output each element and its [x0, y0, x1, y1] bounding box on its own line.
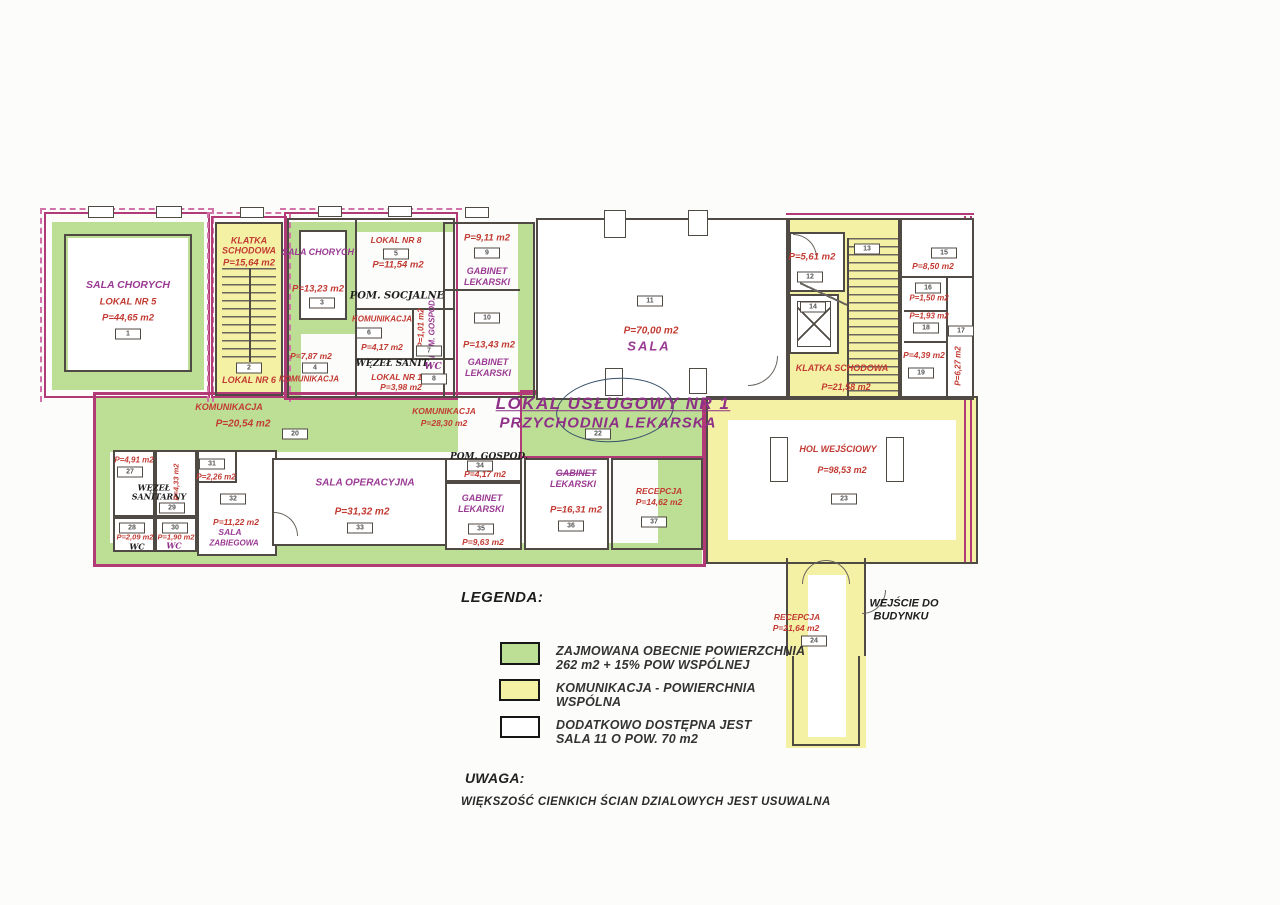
- room34-area: P=4,17 m2: [464, 470, 506, 480]
- klatka2-area: P=21,58 m2: [821, 382, 870, 392]
- pillar-sala-top-2: [688, 210, 708, 236]
- room32-name-2: ZABIEGOWA: [209, 538, 258, 547]
- room5-area: P=11,54 m2: [372, 261, 423, 272]
- legend-item-2-line-2: WSPÓLNA: [556, 695, 621, 709]
- room10-number: 10: [474, 313, 500, 324]
- corridor21-area: P=28,30 m2: [421, 419, 468, 429]
- room10-area: P=13,43 m2: [463, 341, 515, 352]
- room37-area: P=14,62 m2: [636, 498, 683, 508]
- room12-number: 12: [797, 272, 823, 283]
- room10-name-2: LEKARSKI: [465, 368, 511, 378]
- corridor20-number: 20: [282, 429, 308, 440]
- entrance-label-2: BUDYNKU: [874, 611, 929, 624]
- room1-number: 1: [115, 329, 141, 340]
- partition-gabinet: [445, 289, 520, 291]
- room5-lokal: LOKAL NR 8: [371, 236, 422, 246]
- pillar-hol-2: [886, 437, 904, 482]
- room15-number: 15: [931, 248, 957, 259]
- room35-number: 35: [468, 524, 494, 535]
- sala11-number: 11: [637, 296, 663, 307]
- room6-name: KOMUNIKACJA: [352, 314, 412, 323]
- room29-area: P=4,33 m2: [173, 464, 182, 501]
- recepcja24-area: P=21,64 m2: [773, 624, 820, 634]
- room1-name: SALA CHORYCH: [86, 279, 170, 291]
- walls-hol: [706, 396, 978, 564]
- window-bump: [318, 206, 342, 217]
- hol-number: 23: [831, 494, 857, 505]
- room5-number: 5: [383, 249, 409, 260]
- room7-number: 7: [416, 346, 442, 357]
- room1-lokal: LOKAL NR 5: [100, 298, 157, 309]
- room9-name-1: GABINET: [467, 266, 508, 276]
- partition-fr-h3: [904, 341, 946, 343]
- partition-fr-h1: [902, 276, 972, 278]
- room33-number: 33: [347, 523, 373, 534]
- stairs-left-center-line: [249, 268, 251, 362]
- room37-name: RECEPCJA: [636, 487, 682, 497]
- room6-number: 6: [356, 328, 382, 339]
- room17-number: 17: [948, 326, 974, 337]
- room10-name-1: GABINET: [468, 357, 509, 367]
- room9-number: 9: [474, 248, 500, 259]
- room8-number: 8: [421, 374, 447, 385]
- room1-area: P=44,65 m2: [102, 314, 154, 325]
- stairs-right: [847, 238, 898, 398]
- partition-block3-h1: [355, 308, 455, 310]
- room36-name-1-strikethrough: GABINET: [556, 468, 597, 478]
- lokal-uslugowy-number: 22: [585, 429, 611, 440]
- klatka2-name: KLATKA SCHODOWA: [796, 363, 889, 373]
- room8-wc: WC: [424, 362, 441, 372]
- pillar-hol-1: [770, 437, 788, 482]
- room36-name-2: LEKARSKI: [550, 479, 596, 489]
- room3-name: SALA CHORYCH: [282, 247, 354, 257]
- corridor20-area: P=20,54 m2: [216, 418, 271, 430]
- window-bump: [156, 206, 182, 218]
- room14-number: 14: [800, 302, 826, 313]
- window-bump: [88, 206, 114, 218]
- room31-area: P=2,26 m2: [196, 472, 235, 481]
- room35-name-1: GABINET: [462, 493, 503, 503]
- pillar-sala-top-1: [604, 210, 626, 238]
- room28-wc: WC: [129, 542, 144, 551]
- room4-name: KOMUNIKACJA: [279, 374, 339, 383]
- room16-area: P=1,50 m2: [909, 293, 948, 302]
- partition-block3-v2: [412, 308, 414, 360]
- room6-area: P=4,17 m2: [361, 343, 403, 353]
- outline-top-right-section: [786, 213, 974, 216]
- room9-name-2: LEKARSKI: [464, 277, 510, 287]
- room33-area: P=31,32 m2: [335, 506, 390, 518]
- room35-name-2: LEKARSKI: [458, 504, 504, 514]
- legend-item-1-line-1: ZAJMOWANA OBECNIE POWIERZCHNIA: [556, 644, 805, 658]
- legend-title: LEGENDA:: [461, 589, 543, 606]
- room3-number: 3: [309, 298, 335, 309]
- room7-area: P=1,01 m2: [416, 308, 425, 347]
- lokal-uslugowy-title: LOKAL USŁUGOWY NR 1: [496, 394, 731, 414]
- note-text: WIĘKSZOŚĆ CIENKICH ŚCIAN DZIALOWYCH JEST…: [461, 796, 831, 808]
- room17-area: P=6,27 m2: [953, 346, 962, 385]
- room37-number: 37: [641, 517, 667, 528]
- room19-number: 19: [908, 368, 934, 379]
- entrance-label-1: WEJŚCIE DO: [869, 598, 938, 611]
- klatka1-area: P=15,64 m2: [223, 259, 275, 270]
- room16-number: 16: [915, 283, 941, 294]
- room32-name-1: SALA: [218, 528, 241, 538]
- corridor20-name: KOMUNIKACJA: [195, 402, 263, 412]
- room33-name: SALA OPERACYJNA: [315, 477, 414, 489]
- room32-number: 32: [220, 494, 246, 505]
- legend-swatch-white: [500, 716, 540, 738]
- floor-plan-canvas: SALA CHORYCH LOKAL NR 5 P=44,65 m2 1 KLA…: [0, 0, 1280, 905]
- corridor21-name: KOMUNIKACJA: [412, 407, 476, 417]
- room18-area: P=1,93 m2: [909, 311, 948, 320]
- sala11-area: P=70,00 m2: [624, 325, 679, 337]
- legend-item-3-line-1: DODATKOWO DOSTĘPNA JEST: [556, 718, 752, 732]
- room8-handwritten: WĘZEŁ SANIT.: [356, 359, 431, 369]
- room30-wc: WC: [166, 541, 181, 550]
- room4-number: 4: [302, 363, 328, 374]
- room8-area: P=3,98 m2: [380, 383, 422, 393]
- room36-area: P=16,31 m2: [550, 506, 602, 517]
- note-title: UWAGA:: [465, 770, 525, 786]
- klatka1-number: 2: [236, 363, 262, 374]
- room18-number: 18: [913, 323, 939, 334]
- room29-number: 29: [159, 503, 185, 514]
- window-bump: [465, 207, 489, 218]
- window-bump: [388, 206, 412, 217]
- legend-item-3-line-2: SALA 11 O POW. 70 m2: [556, 732, 698, 746]
- pillar-sala-bottom-2: [689, 368, 707, 394]
- room31-number: 31: [199, 459, 225, 470]
- room9-area: P=9,11 m2: [464, 234, 510, 245]
- legend-swatch-green: [500, 642, 540, 665]
- room27-area: P=4,91 m2: [114, 455, 153, 464]
- legend-item-1-line-2: 262 m2 + 15% POW WSPÓLNEJ: [556, 658, 750, 672]
- room12-area: P=5,61 m2: [789, 253, 836, 264]
- klatka1-name: KLATKA SCHODOWA: [219, 236, 279, 257]
- legend-item-2-line-1: KOMUNIKACJA - POWIERCHNIA: [556, 681, 756, 695]
- recepcja24-name: RECEPCJA: [774, 613, 820, 623]
- room4-area: P=7,87 m2: [290, 352, 332, 362]
- room36-number: 36: [558, 521, 584, 532]
- sala11-name: SALA: [627, 340, 670, 355]
- room13-number: 13: [854, 244, 880, 255]
- room27-number: 27: [117, 467, 143, 478]
- klatka1-lokal: LOKAL NR 6: [222, 375, 276, 385]
- walls-entrance-corridor-lower: [792, 656, 860, 746]
- room19-area: P=4,39 m2: [903, 351, 945, 361]
- window-bump: [240, 207, 264, 218]
- room15-area: P=8,50 m2: [912, 262, 954, 272]
- legend-swatch-yellow: [499, 679, 540, 701]
- hol-name: HOL WEJŚCIOWY: [799, 444, 876, 454]
- room35-area: P=9,63 m2: [462, 538, 504, 548]
- hol-area: P=98,53 m2: [817, 465, 866, 475]
- room3-area: P=13,23 m2: [292, 285, 344, 296]
